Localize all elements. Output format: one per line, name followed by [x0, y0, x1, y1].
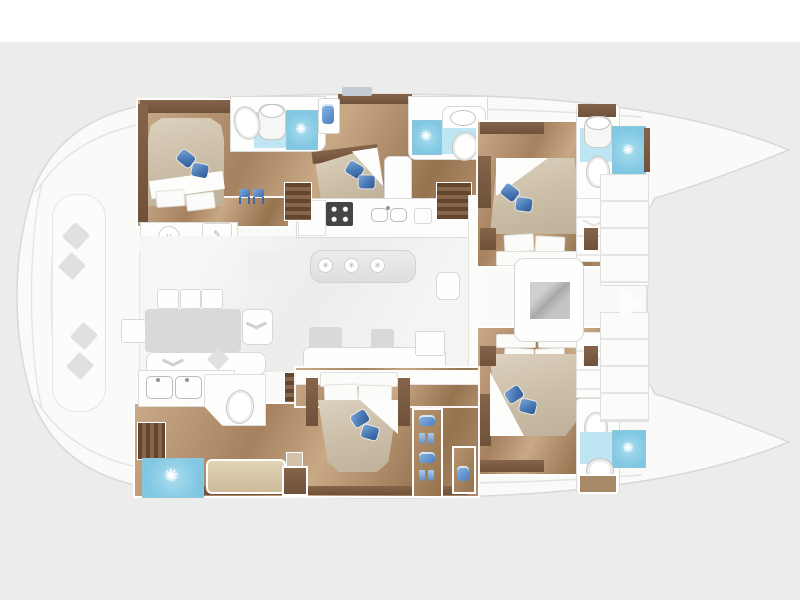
cabin-trim: [480, 460, 544, 472]
island-appliance-icon: ✳: [318, 258, 333, 273]
chevron-pillow-icon: [162, 354, 184, 369]
side-table: [415, 331, 445, 356]
appliance-glyph: ✳: [322, 262, 329, 270]
staircase-port-aft: [284, 182, 312, 221]
console-post: [480, 228, 496, 250]
galley-double-sink: [370, 206, 408, 223]
blue-fixture: [457, 466, 469, 481]
blue-fixture: [322, 104, 334, 124]
cabinet: [452, 446, 476, 494]
mini-seat-legs: [253, 197, 264, 204]
staircase-owner: [137, 422, 166, 460]
appliance-glyph: ✳: [374, 262, 381, 270]
owner-bed: [316, 372, 400, 472]
glassware-icon: [428, 433, 434, 444]
console-post: [584, 346, 598, 366]
faucet: [386, 206, 390, 210]
yacht-floor-plan: × ✎ ✳✳ ✳✳ ✳ ✳ ✳: [0, 0, 800, 600]
head-pillow: [155, 189, 185, 208]
blue-pillow: [359, 175, 375, 188]
owner-bench: [206, 459, 286, 494]
island-bench: [248, 252, 306, 280]
washbasin-top: [586, 116, 610, 130]
wardrobe-column: [600, 174, 649, 286]
vanity-cabinet: [578, 474, 618, 494]
minibar-column: [412, 408, 443, 498]
glassware-icon: [428, 470, 434, 481]
chevron-pillow-icon: [246, 318, 267, 332]
dining-table: [145, 309, 241, 352]
port-aft-cabin-side-trim: [138, 104, 148, 222]
sink-basin: [390, 208, 407, 222]
blue-fixture: [419, 415, 435, 426]
port-fwd-bed: [490, 158, 582, 266]
glassware-icon: [419, 470, 425, 481]
dining-chair: [157, 289, 179, 309]
port-aft-bed: [148, 118, 224, 222]
galley-seat: [436, 272, 460, 300]
head-pillow: [504, 233, 535, 253]
faucet: [156, 378, 160, 382]
shower-sun-icon: ✳✳: [417, 127, 435, 145]
shower-sun-icon: ✳✳: [162, 467, 180, 485]
galley-appliance: [414, 208, 432, 224]
head-pillow: [185, 191, 216, 211]
washbasin-top: [450, 110, 476, 126]
island-appliance-icon: ✳: [344, 258, 359, 273]
stove-cooktop: [326, 202, 353, 226]
mini-seat: [253, 189, 264, 197]
tv-screen: [528, 280, 572, 321]
island-appliance-icon: ✳: [370, 258, 385, 273]
blue-fixture: [419, 452, 435, 463]
bow-arrow: [620, 288, 646, 320]
dining-chair: [180, 289, 201, 309]
wardrobe-column: [600, 312, 649, 422]
deck-hatch: [342, 87, 372, 96]
dining-chair: [201, 289, 223, 309]
sink-basin: [371, 208, 388, 222]
mini-seat: [239, 189, 250, 197]
washbasin-top: [260, 104, 284, 118]
mini-seat-legs: [239, 197, 250, 204]
shower-sun-icon: ✳✳: [619, 141, 637, 159]
appliance-glyph: ✳: [348, 262, 355, 270]
cabin-trim: [480, 122, 544, 134]
staircase-port-fwd: [436, 182, 472, 220]
cabin-door-panel: [384, 156, 412, 204]
blue-pillow: [515, 197, 533, 212]
faucet: [185, 378, 189, 382]
dining-chair: [121, 319, 146, 343]
cabinet: [282, 466, 308, 496]
glassware-icon: [419, 433, 425, 444]
stbd-fwd-bed: [490, 332, 582, 442]
console-post: [584, 228, 598, 250]
bathroom-trim: [644, 128, 650, 172]
shower-sun-icon: ✳✳: [619, 439, 637, 457]
console-post: [480, 346, 496, 366]
shower-sun-icon: ✳✳: [292, 120, 310, 138]
